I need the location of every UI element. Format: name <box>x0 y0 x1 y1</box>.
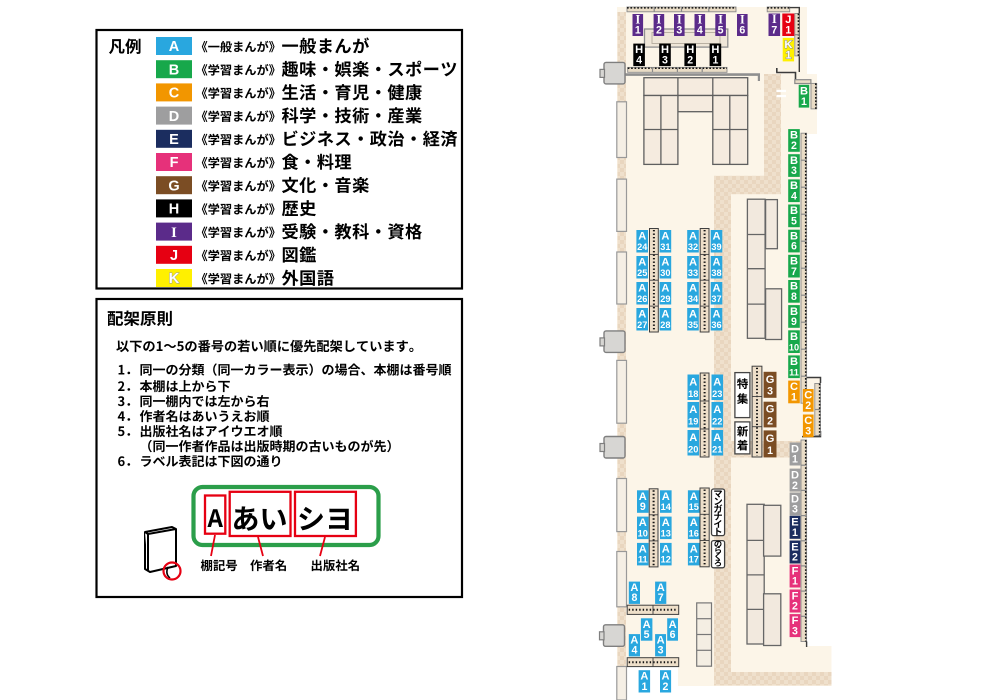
svg-text:7: 7 <box>771 24 777 36</box>
svg-text:10: 10 <box>638 528 648 538</box>
svg-text:15: 15 <box>689 502 699 512</box>
svg-text:1: 1 <box>801 96 807 108</box>
svg-text:A: A <box>690 544 698 556</box>
svg-text:21: 21 <box>712 444 722 454</box>
svg-text:1: 1 <box>792 527 798 539</box>
svg-text:4: 4 <box>791 190 797 202</box>
svg-text:36: 36 <box>711 320 721 330</box>
svg-text:A: A <box>689 231 697 243</box>
svg-text:28: 28 <box>660 320 670 330</box>
svg-text:A: A <box>689 283 697 295</box>
svg-text:1: 1 <box>641 681 647 693</box>
svg-text:10: 10 <box>789 342 799 352</box>
svg-text:B: B <box>790 356 798 368</box>
svg-text:11: 11 <box>638 555 648 565</box>
svg-text:A: A <box>638 231 646 243</box>
svg-text:A: A <box>662 517 670 529</box>
svg-text:30: 30 <box>660 268 670 278</box>
svg-text:A: A <box>661 283 669 295</box>
svg-text:A: A <box>639 544 647 556</box>
svg-text:A: A <box>661 309 669 321</box>
svg-text:3: 3 <box>662 54 668 66</box>
svg-text:C: C <box>169 86 180 102</box>
svg-text:3: 3 <box>676 24 682 36</box>
svg-text:1: 1 <box>792 576 798 588</box>
svg-text:B: B <box>169 62 179 78</box>
svg-text:4: 4 <box>697 24 703 36</box>
svg-text:16: 16 <box>689 528 699 538</box>
svg-text:A: A <box>713 376 721 388</box>
svg-text:F: F <box>170 155 179 171</box>
svg-text:1: 1 <box>791 392 797 404</box>
svg-text:3: 3 <box>791 165 797 177</box>
svg-text:A: A <box>639 517 647 529</box>
svg-text:2: 2 <box>687 54 693 66</box>
svg-text:4: 4 <box>636 54 642 66</box>
svg-text:A: A <box>689 432 697 444</box>
svg-text:3: 3 <box>658 645 664 657</box>
svg-text:A: A <box>662 491 670 503</box>
svg-text:2: 2 <box>663 681 669 693</box>
svg-text:2: 2 <box>792 480 798 492</box>
svg-text:A: A <box>689 404 697 416</box>
svg-text:37: 37 <box>711 294 721 304</box>
svg-text:B: B <box>790 331 798 343</box>
svg-text:2: 2 <box>792 601 798 613</box>
svg-text:24: 24 <box>637 242 648 252</box>
svg-text:A: A <box>169 39 180 55</box>
svg-text:22: 22 <box>712 416 722 426</box>
svg-text:26: 26 <box>637 294 647 304</box>
svg-text:8: 8 <box>791 291 797 303</box>
svg-text:6: 6 <box>739 24 745 36</box>
svg-text:7: 7 <box>791 266 797 278</box>
svg-text:1: 1 <box>635 24 641 36</box>
svg-text:5: 5 <box>718 24 724 36</box>
svg-text:1: 1 <box>785 24 791 36</box>
svg-text:12: 12 <box>661 555 671 565</box>
svg-text:G: G <box>766 433 775 445</box>
svg-text:A: A <box>638 309 646 321</box>
svg-text:A: A <box>689 257 697 269</box>
svg-text:9: 9 <box>791 316 797 328</box>
svg-text:2: 2 <box>805 400 811 412</box>
svg-text:7: 7 <box>658 592 664 604</box>
svg-text:G: G <box>766 374 775 386</box>
svg-text:A: A <box>712 231 720 243</box>
svg-text:34: 34 <box>688 294 699 304</box>
svg-text:H: H <box>169 202 179 218</box>
svg-text:E: E <box>169 132 179 148</box>
svg-text:38: 38 <box>711 268 721 278</box>
svg-text:A: A <box>689 309 697 321</box>
svg-text:A: A <box>712 257 720 269</box>
svg-text:11: 11 <box>789 367 799 377</box>
svg-text:39: 39 <box>711 242 721 252</box>
svg-text:29: 29 <box>660 294 670 304</box>
svg-text:2: 2 <box>656 24 662 36</box>
svg-text:A: A <box>662 544 670 556</box>
svg-text:8: 8 <box>631 592 637 604</box>
svg-text:17: 17 <box>689 555 699 565</box>
svg-text:A: A <box>712 309 720 321</box>
svg-text:3: 3 <box>792 625 798 637</box>
svg-text:20: 20 <box>688 444 698 454</box>
svg-text:A: A <box>689 376 697 388</box>
svg-text:3: 3 <box>792 504 798 516</box>
svg-text:19: 19 <box>688 416 698 426</box>
svg-text:32: 32 <box>688 242 698 252</box>
svg-text:3: 3 <box>805 426 811 438</box>
svg-text:J: J <box>170 248 178 264</box>
svg-text:2: 2 <box>767 415 773 427</box>
svg-text:6: 6 <box>670 629 676 641</box>
svg-text:25: 25 <box>637 268 647 278</box>
svg-text:A: A <box>661 257 669 269</box>
svg-text:33: 33 <box>688 268 698 278</box>
svg-text:G: G <box>766 404 775 416</box>
svg-text:3: 3 <box>767 386 773 398</box>
svg-text:35: 35 <box>688 320 698 330</box>
svg-text:A: A <box>638 257 646 269</box>
svg-text:2: 2 <box>791 140 797 152</box>
svg-text:A: A <box>712 283 720 295</box>
svg-text:6: 6 <box>791 241 797 253</box>
svg-text:D: D <box>169 109 179 125</box>
svg-text:I: I <box>171 225 177 241</box>
svg-text:13: 13 <box>661 528 671 538</box>
svg-text:4: 4 <box>631 645 637 657</box>
svg-text:18: 18 <box>688 389 698 399</box>
svg-text:A: A <box>661 231 669 243</box>
svg-text:1: 1 <box>785 50 791 62</box>
svg-text:9: 9 <box>640 501 646 513</box>
svg-text:14: 14 <box>661 502 672 512</box>
svg-text:23: 23 <box>712 389 722 399</box>
svg-text:A: A <box>690 517 698 529</box>
svg-text:5: 5 <box>791 216 797 228</box>
svg-text:1: 1 <box>712 54 718 66</box>
svg-text:A: A <box>713 432 721 444</box>
svg-text:A: A <box>690 491 698 503</box>
svg-text:27: 27 <box>637 320 647 330</box>
svg-text:1: 1 <box>792 454 798 466</box>
svg-text:31: 31 <box>660 242 670 252</box>
svg-text:K: K <box>169 271 180 287</box>
svg-text:A: A <box>638 283 646 295</box>
svg-text:1: 1 <box>767 445 773 457</box>
svg-text:G: G <box>168 178 179 194</box>
svg-text:5: 5 <box>644 629 650 641</box>
svg-text:2: 2 <box>792 552 798 564</box>
svg-text:A: A <box>713 404 721 416</box>
